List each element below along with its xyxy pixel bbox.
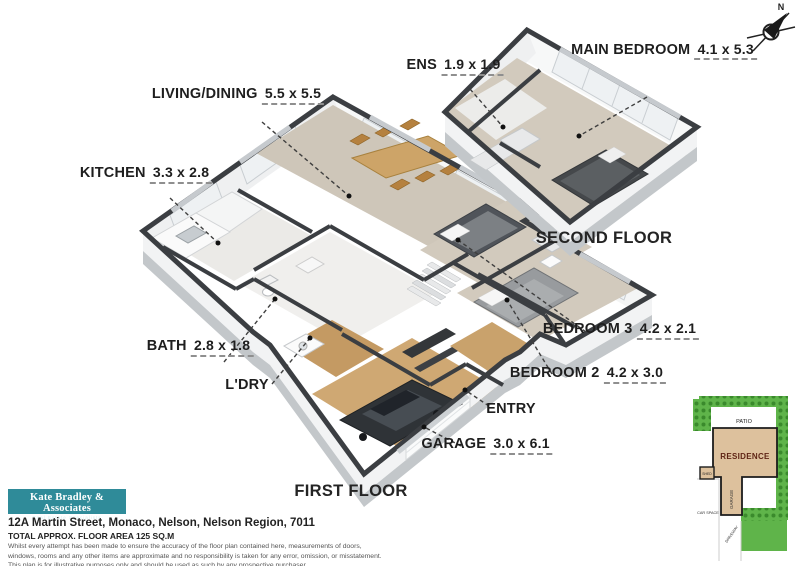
room-name-line1: MAIN bbox=[571, 42, 609, 58]
agency-logo: Kate Bradley & Associates Real Estate Sp… bbox=[8, 489, 126, 514]
site-residence-label: RESIDENCE bbox=[720, 452, 770, 461]
label-garage: GARAGE 3.0 x 6.1 bbox=[421, 434, 552, 455]
room-dims: 5.5 x 5.5 bbox=[262, 85, 324, 105]
site-shed-label: SHED bbox=[702, 472, 712, 476]
site-garage-label: GARAGE bbox=[729, 490, 734, 509]
room-name: BEDROOM 3 bbox=[543, 321, 633, 337]
first-floor-title: FIRST FLOOR bbox=[294, 482, 407, 501]
compass-north-label: N bbox=[778, 2, 785, 12]
floorplan-canvas: N PATIO RESIDENCE GARAGE SHED CAR SPACE … bbox=[0, 0, 800, 566]
disclaimer-line: Whilst every attempt has been made to en… bbox=[8, 542, 382, 552]
room-dims: 3.3 x 2.8 bbox=[150, 164, 212, 184]
label-bedroom3: BEDROOM 3 4.2 x 2.1 bbox=[543, 319, 699, 340]
label-ens: ENS 1.9 x 1.9 bbox=[407, 55, 504, 76]
room-name: ENS bbox=[407, 57, 437, 73]
disclaimer-line: This plan is for illustrative purposes o… bbox=[8, 561, 382, 566]
agency-name: Kate Bradley & Associates bbox=[8, 492, 126, 514]
second-floor-title: SECOND FLOOR bbox=[536, 229, 673, 248]
room-name: ENTRY bbox=[486, 401, 536, 417]
room-dims: 3.0 x 6.1 bbox=[490, 435, 552, 455]
site-plan: PATIO RESIDENCE GARAGE SHED CAR SPACE DR… bbox=[693, 396, 788, 561]
room-name: L'DRY bbox=[225, 377, 268, 393]
property-address: 12A Martin Street, Monaco, Nelson, Nelso… bbox=[8, 517, 315, 529]
label-bedroom2: BEDROOM 2 4.2 x 3.0 bbox=[510, 363, 666, 384]
room-name: BEDROOM 2 bbox=[510, 365, 600, 381]
site-driveway-label: DRIVEWAY bbox=[725, 525, 740, 544]
room-name: KITCHEN bbox=[80, 165, 146, 181]
room-dims: 2.8 x 1.8 bbox=[191, 337, 253, 357]
room-name: BATH bbox=[147, 338, 187, 354]
room-name-line2: BEDROOM bbox=[613, 42, 690, 58]
room-dims: 4.2 x 3.0 bbox=[604, 364, 666, 384]
label-living-dining: LIVING/DINING 5.5 x 5.5 bbox=[152, 84, 324, 105]
label-entry: ENTRY bbox=[486, 401, 536, 418]
label-laundry: L'DRY bbox=[225, 377, 268, 394]
site-car-space-label: CAR SPACE bbox=[697, 511, 719, 515]
label-kitchen: KITCHEN 3.3 x 2.8 bbox=[80, 163, 212, 184]
room-name: GARAGE bbox=[421, 436, 486, 452]
label-main-bedroom: MAIN BEDROOM 4.1 x 5.3 bbox=[571, 40, 757, 60]
site-patio-label: PATIO bbox=[736, 419, 752, 425]
room-dims: 4.1 x 5.3 bbox=[695, 41, 757, 60]
label-bath: BATH 2.8 x 1.8 bbox=[147, 336, 254, 357]
disclaimer: Whilst every attempt has been made to en… bbox=[8, 542, 382, 566]
floor-area-note: TOTAL APPROX. FLOOR AREA 125 SQ.M bbox=[8, 531, 174, 541]
room-dims: 4.2 x 2.1 bbox=[637, 320, 699, 340]
disclaimer-line: windows, rooms and any other items are a… bbox=[8, 552, 382, 562]
room-dims: 1.9 x 1.9 bbox=[441, 56, 503, 76]
room-name: LIVING/DINING bbox=[152, 86, 258, 102]
site-residence-shape bbox=[713, 428, 777, 515]
